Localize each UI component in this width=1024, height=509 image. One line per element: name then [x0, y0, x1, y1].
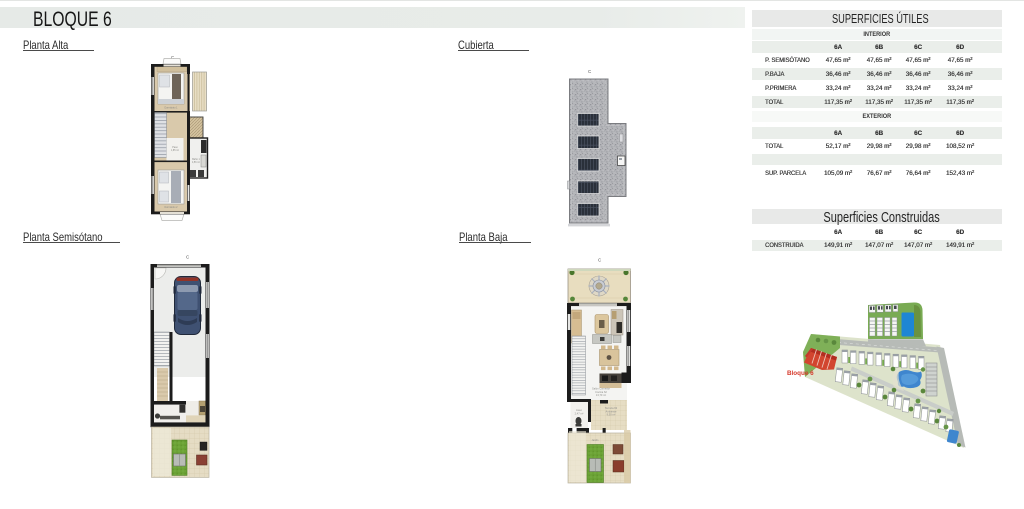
svg-text:Bloque 6: Bloque 6	[787, 370, 814, 377]
svg-text:Jardín: Jardín	[592, 439, 599, 442]
svg-text:4,56 m²: 4,56 m²	[192, 161, 200, 164]
svg-text:Dormitorio 2: Dormitorio 2	[164, 206, 178, 209]
svg-text:13,70 m²: 13,70 m²	[596, 393, 606, 397]
svg-text:C: C	[588, 69, 592, 74]
svg-text:C: C	[186, 255, 190, 260]
svg-text:Dormitorio 1: Dormitorio 1	[164, 107, 178, 110]
svg-text:C: C	[598, 258, 602, 263]
svg-text:1,85 m²: 1,85 m²	[171, 149, 179, 152]
svg-text:2,47 m²: 2,47 m²	[575, 411, 584, 415]
svg-text:9,50 m²: 9,50 m²	[607, 413, 616, 417]
